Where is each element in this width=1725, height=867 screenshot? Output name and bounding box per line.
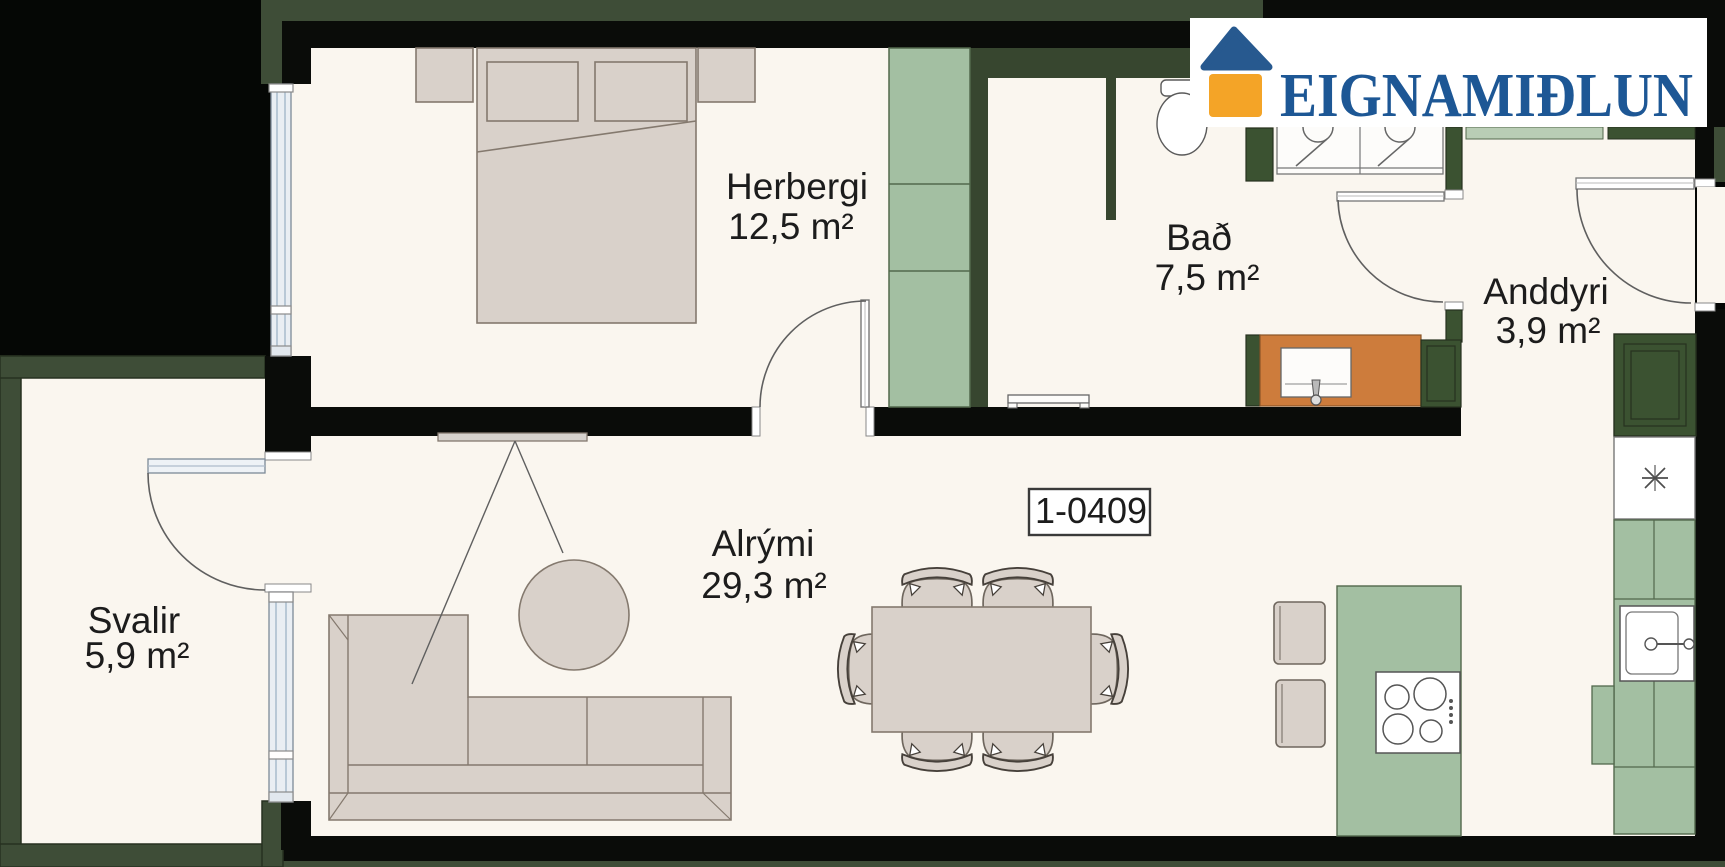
svg-text:Alrými: Alrými — [712, 523, 815, 564]
svg-text:EIGNAMIÐLUN: EIGNAMIÐLUN — [1280, 62, 1693, 130]
svg-text:12,5 m²: 12,5 m² — [728, 206, 853, 247]
svg-text:1-0409: 1-0409 — [1035, 490, 1147, 531]
svg-text:Herbergi: Herbergi — [726, 166, 868, 207]
svg-text:7,5 m²: 7,5 m² — [1155, 257, 1260, 298]
svg-text:Anddyri: Anddyri — [1483, 271, 1608, 312]
svg-text:3,9 m²: 3,9 m² — [1496, 310, 1601, 351]
svg-text:5,9 m²: 5,9 m² — [85, 635, 190, 676]
svg-text:Bað: Bað — [1166, 217, 1232, 258]
svg-text:29,3 m²: 29,3 m² — [701, 565, 826, 606]
